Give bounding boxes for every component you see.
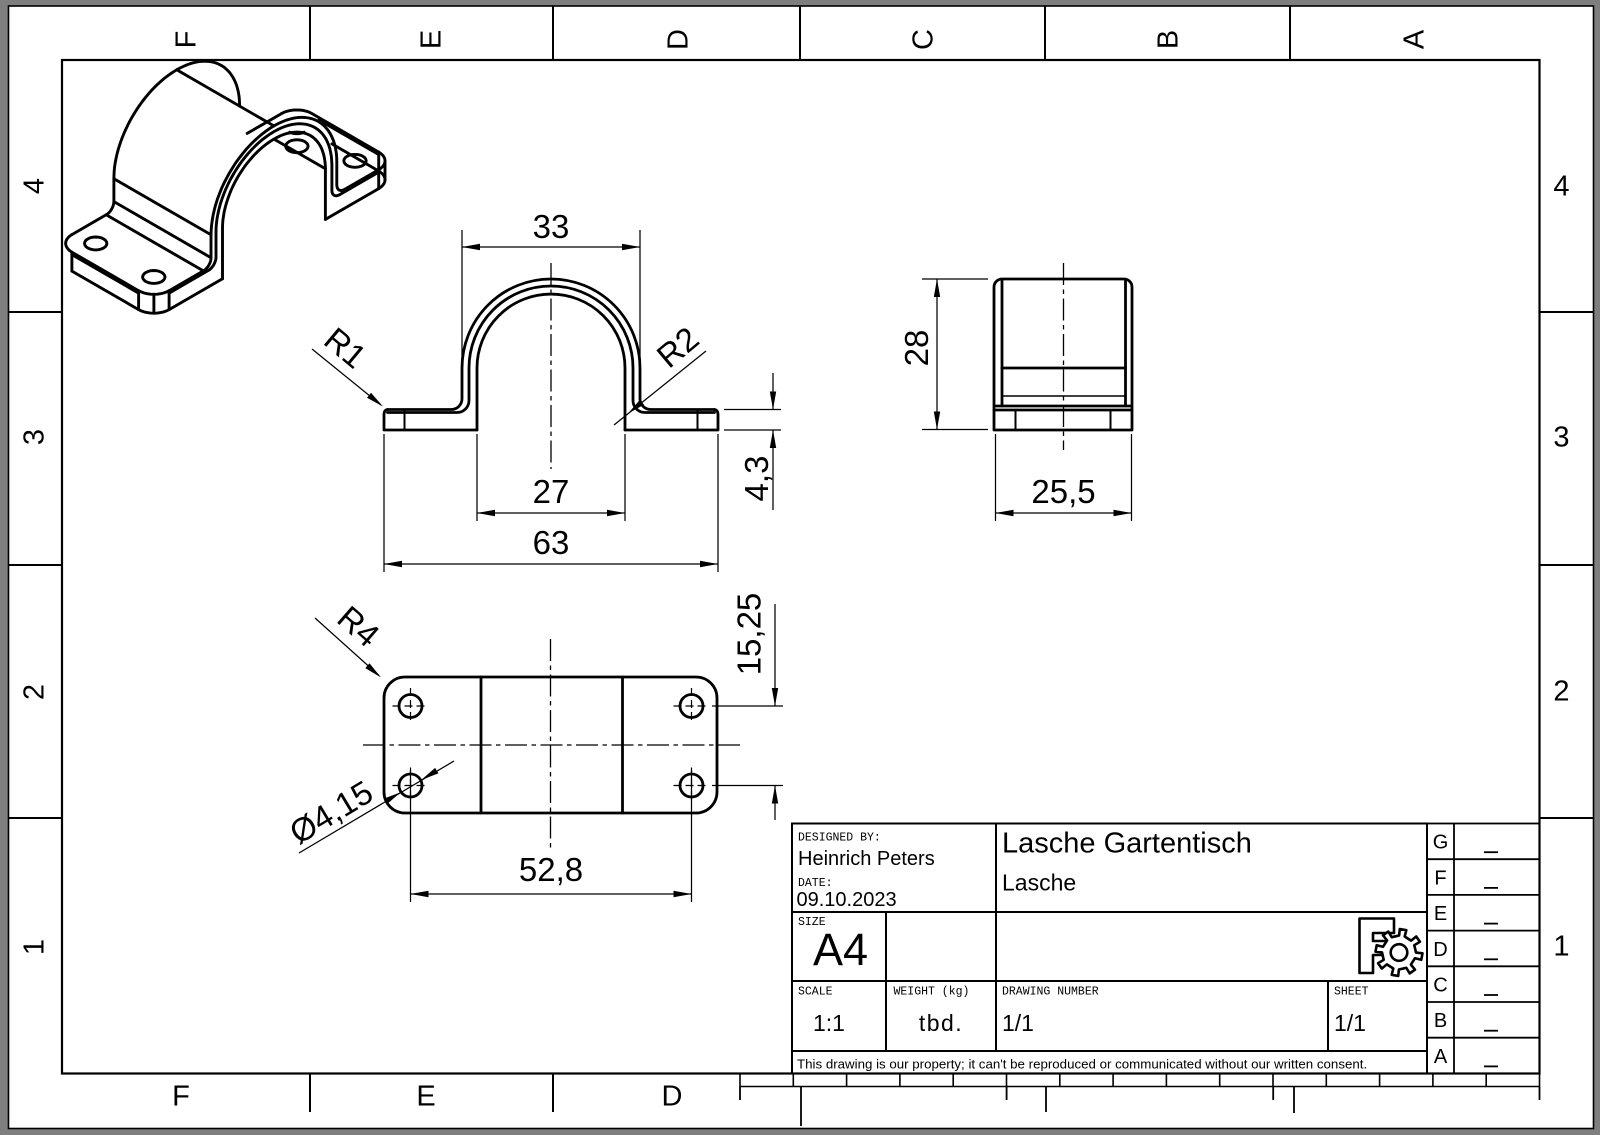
svg-text:B: B xyxy=(1153,30,1185,49)
svg-text:2: 2 xyxy=(1553,676,1569,708)
svg-text:27: 27 xyxy=(533,473,570,510)
svg-text:63: 63 xyxy=(533,524,570,561)
svg-text:WEIGHT (kg): WEIGHT (kg) xyxy=(894,986,970,999)
svg-text:28: 28 xyxy=(898,330,935,367)
svg-text:1: 1 xyxy=(19,939,51,955)
svg-text:F: F xyxy=(1434,867,1446,889)
svg-text:1: 1 xyxy=(1553,931,1569,963)
svg-text:G: G xyxy=(1433,832,1449,854)
svg-text:SCALE: SCALE xyxy=(798,986,833,999)
svg-text:tbd.: tbd. xyxy=(919,1010,963,1036)
svg-text:52,8: 52,8 xyxy=(519,851,583,888)
svg-text:B: B xyxy=(1434,1010,1447,1032)
svg-text:2: 2 xyxy=(19,684,51,700)
svg-text:4: 4 xyxy=(19,178,51,194)
svg-text:A: A xyxy=(1399,29,1431,49)
svg-text:E: E xyxy=(1434,903,1447,925)
svg-text:1/1: 1/1 xyxy=(1334,1010,1366,1036)
svg-text:DESIGNED BY:: DESIGNED BY: xyxy=(798,832,881,845)
svg-text:This drawing is our property;: This drawing is our property; it can't b… xyxy=(797,1057,1367,1072)
svg-text:D: D xyxy=(1433,939,1447,961)
svg-text:F: F xyxy=(172,1081,190,1113)
svg-text:DRAWING NUMBER: DRAWING NUMBER xyxy=(1002,986,1099,999)
svg-text:33: 33 xyxy=(533,208,570,245)
svg-text:Heinrich Peters: Heinrich Peters xyxy=(798,848,935,870)
svg-text:1:1: 1:1 xyxy=(813,1010,845,1036)
svg-text:A: A xyxy=(1434,1046,1448,1068)
svg-text:E: E xyxy=(416,1081,435,1113)
svg-text:C: C xyxy=(1433,974,1447,996)
svg-text:F: F xyxy=(171,31,203,49)
svg-text:Lasche: Lasche xyxy=(1002,870,1076,896)
svg-text:09.10.2023: 09.10.2023 xyxy=(797,889,897,911)
svg-text:4,3: 4,3 xyxy=(738,456,775,502)
svg-text:A4: A4 xyxy=(813,924,868,975)
svg-text:SHEET: SHEET xyxy=(1334,986,1369,999)
svg-text:4: 4 xyxy=(1553,171,1569,203)
svg-text:3: 3 xyxy=(1553,422,1569,454)
svg-text:C: C xyxy=(908,29,940,50)
svg-text:D: D xyxy=(663,29,695,50)
svg-text:Lasche Gartentisch: Lasche Gartentisch xyxy=(1002,828,1252,860)
svg-text:3: 3 xyxy=(19,429,51,445)
svg-text:E: E xyxy=(416,30,448,49)
svg-text:15,25: 15,25 xyxy=(731,593,768,676)
svg-text:D: D xyxy=(662,1081,683,1113)
svg-text:25,5: 25,5 xyxy=(1031,473,1095,510)
svg-text:1/1: 1/1 xyxy=(1002,1010,1034,1036)
